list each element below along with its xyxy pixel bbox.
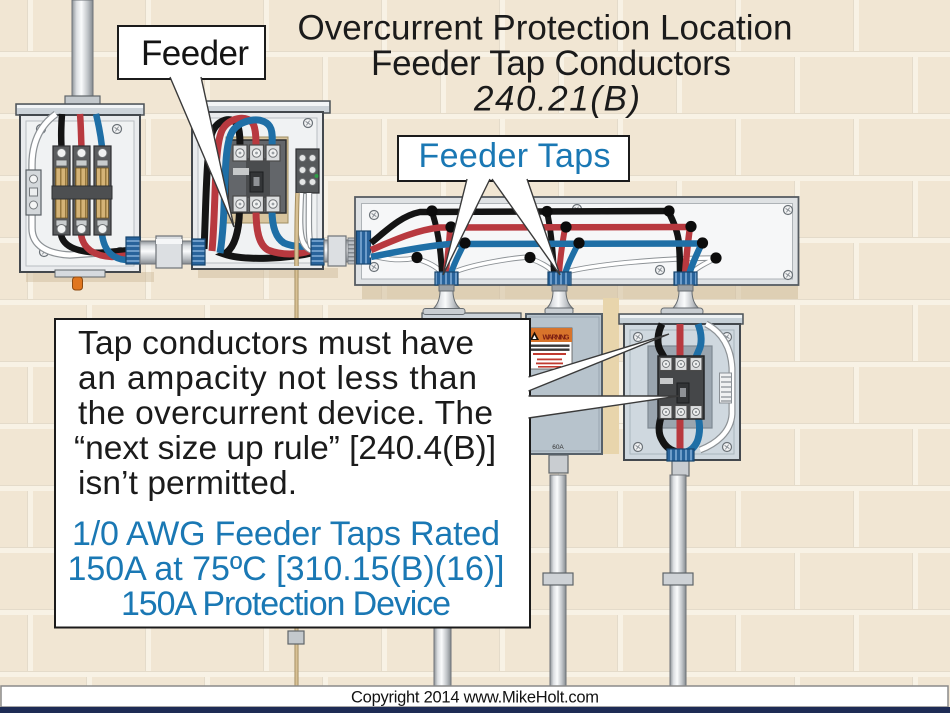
svg-text:150A Protection Device: 150A Protection Device bbox=[121, 585, 451, 623]
svg-text:Copyright 2014 www.MikeHolt.co: Copyright 2014 www.MikeHolt.com bbox=[351, 689, 599, 707]
svg-text:isn’t permitted.: isn’t permitted. bbox=[78, 465, 297, 502]
svg-text:Feeder Tap Conductors: Feeder Tap Conductors bbox=[371, 44, 731, 83]
svg-text:240.21(B): 240.21(B) bbox=[473, 80, 640, 119]
svg-text:an ampacity not less than: an ampacity not less than bbox=[78, 360, 477, 397]
svg-text:“next size up rule” [240.4(B)]: “next size up rule” [240.4(B)] bbox=[74, 430, 496, 467]
svg-text:WARNING: WARNING bbox=[543, 335, 571, 342]
svg-text:Feeder: Feeder bbox=[141, 34, 249, 73]
svg-text:the overcurrent device. The: the overcurrent device. The bbox=[78, 395, 493, 432]
svg-text:150A at 75ºC [310.15(B)(16)]: 150A at 75ºC [310.15(B)(16)] bbox=[68, 550, 505, 588]
svg-text:Feeder Taps: Feeder Taps bbox=[419, 137, 611, 175]
svg-text:1/0 AWG Feeder Taps Rated: 1/0 AWG Feeder Taps Rated bbox=[72, 515, 500, 553]
svg-text:60A: 60A bbox=[552, 444, 564, 451]
svg-text:Overcurrent Protection Locatio: Overcurrent Protection Location bbox=[298, 9, 793, 48]
svg-text:Tap conductors must have: Tap conductors must have bbox=[78, 325, 474, 362]
